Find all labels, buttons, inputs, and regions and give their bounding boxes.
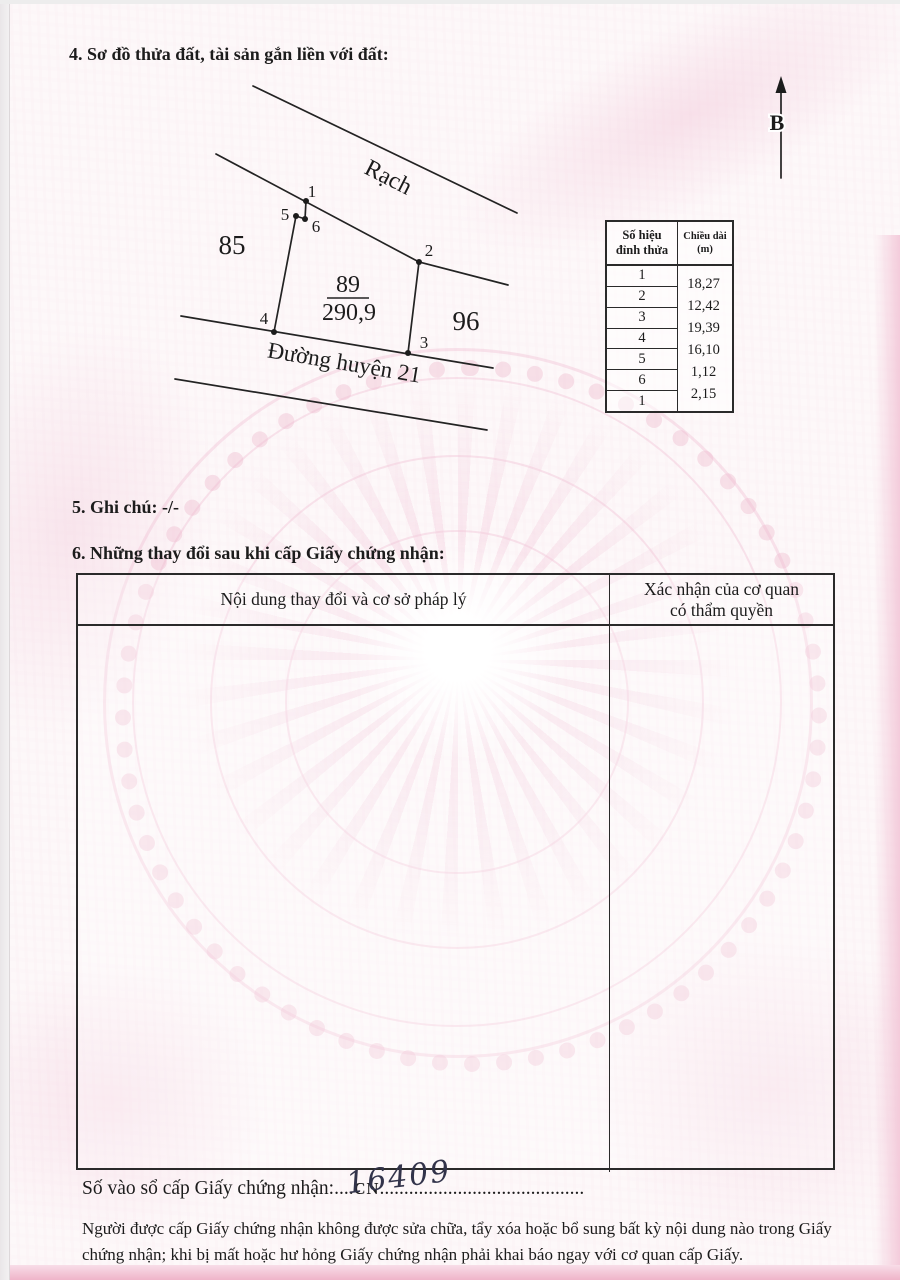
length-value: 12,42: [678, 298, 729, 315]
length-value: 2,15: [678, 386, 729, 403]
north-arrow-head: [776, 76, 787, 93]
changes-col1-body: [78, 626, 610, 1172]
photo-left-edge: [0, 0, 10, 1280]
vertex-number-cell: 5: [607, 349, 677, 370]
vertex-number-cell: 1: [607, 391, 677, 411]
vertex-number-cell: 1: [607, 266, 677, 287]
vertex-table-col1-header: Số hiệu đỉnh thửa: [607, 222, 678, 264]
registry-number-line: Số vào sổ cấp Giấy chứng nhận:....CN....…: [82, 1178, 584, 1200]
road-lower-line: [175, 379, 487, 430]
length-value: 1,12: [678, 364, 729, 381]
changes-col1-header: Nội dung thay đổi và cơ sở pháp lý: [78, 575, 610, 624]
length-value: 16,10: [678, 342, 729, 359]
vertex-number-cell: 6: [607, 370, 677, 391]
vertex-number-cell: 4: [607, 329, 677, 350]
vertex-dot-3: [405, 350, 411, 356]
road-label: Đường huyện 21: [266, 337, 423, 387]
parcel-edge-5-6: [296, 216, 305, 219]
vertex-dot-4: [271, 329, 277, 335]
parcel-area: 290,9: [322, 300, 376, 326]
pink-right-margin-band: [874, 235, 900, 1280]
vertex-dot-5: [293, 213, 299, 219]
changes-col2-body: [610, 626, 833, 1172]
section5-title: 5. Ghi chú: -/-: [72, 497, 179, 518]
length-value: 18,27: [678, 276, 729, 293]
parcel-sketch: 1 2 3 4 5 6 85 96 89 290,9 Rạch Đường hu…: [0, 0, 900, 470]
vertex-dot-6: [302, 216, 308, 222]
vertex-number-cell: 2: [607, 287, 677, 308]
vertex-length-table: Số hiệu đỉnh thửa Chiều dài (m) 1 2 3 4 …: [605, 220, 734, 413]
changes-col2-header-line1: Xác nhận của cơ quan: [644, 579, 799, 599]
parcel-edge-4-5: [274, 216, 296, 332]
canal-far-bank-line: [253, 86, 517, 213]
changes-col2-header-line2: có thẩm quyền: [670, 600, 773, 620]
road-upper-line: [181, 316, 493, 368]
col2-header-line1: Chiều dài: [683, 230, 726, 243]
photo-top-edge: [0, 0, 900, 4]
vertex-label-3: 3: [420, 333, 429, 352]
vertex-dot-2: [416, 259, 422, 265]
section6-title: 6. Những thay đổi sau khi cấp Giấy chứng…: [72, 543, 445, 564]
vertex-label-2: 2: [425, 241, 434, 260]
parcel-edge-6-1: [305, 201, 306, 219]
changes-col2-header: Xác nhận của cơ quan có thẩm quyền: [610, 575, 833, 624]
section4-title: 4. Sơ đồ thửa đất, tài sản gắn liền với …: [69, 44, 389, 65]
canal-near-bank-line: [216, 154, 508, 285]
vertex-dot-1: [303, 198, 309, 204]
vertex-label-6: 6: [312, 217, 321, 236]
north-label: B: [770, 110, 785, 135]
canal-label: Rạch: [360, 155, 416, 201]
length-column: 18,27 12,42 19,39 16,10 1,12 2,15: [678, 266, 732, 411]
col2-header-line2: (m): [697, 243, 713, 256]
right-parcel-number: 96: [453, 306, 480, 336]
footer-note: Người được cấp Giấy chứng nhận không đượ…: [82, 1216, 846, 1269]
col1-header-line2: đỉnh thửa: [616, 243, 668, 258]
vertex-number-cell: 3: [607, 308, 677, 329]
vertex-label-4: 4: [260, 309, 269, 328]
vertex-number-column: 1 2 3 4 5 6 1: [607, 266, 678, 411]
vertex-table-header: Số hiệu đỉnh thửa Chiều dài (m): [607, 222, 732, 266]
parcel-number: 89: [336, 272, 360, 298]
parcel-edge-2-3: [408, 262, 419, 353]
vertex-label-1: 1: [308, 182, 317, 201]
vertex-label-5: 5: [281, 205, 290, 224]
vertex-table-col2-header: Chiều dài (m): [678, 222, 732, 264]
changes-table: Nội dung thay đổi và cơ sở pháp lý Xác n…: [76, 573, 835, 1170]
pink-bottom-band: [0, 1265, 900, 1280]
col1-header-line1: Số hiệu: [622, 228, 661, 243]
registry-label: Số vào sổ cấp Giấy chứng nhận:: [82, 1178, 334, 1199]
left-parcel-number: 85: [219, 230, 246, 260]
length-value: 19,39: [678, 320, 729, 337]
